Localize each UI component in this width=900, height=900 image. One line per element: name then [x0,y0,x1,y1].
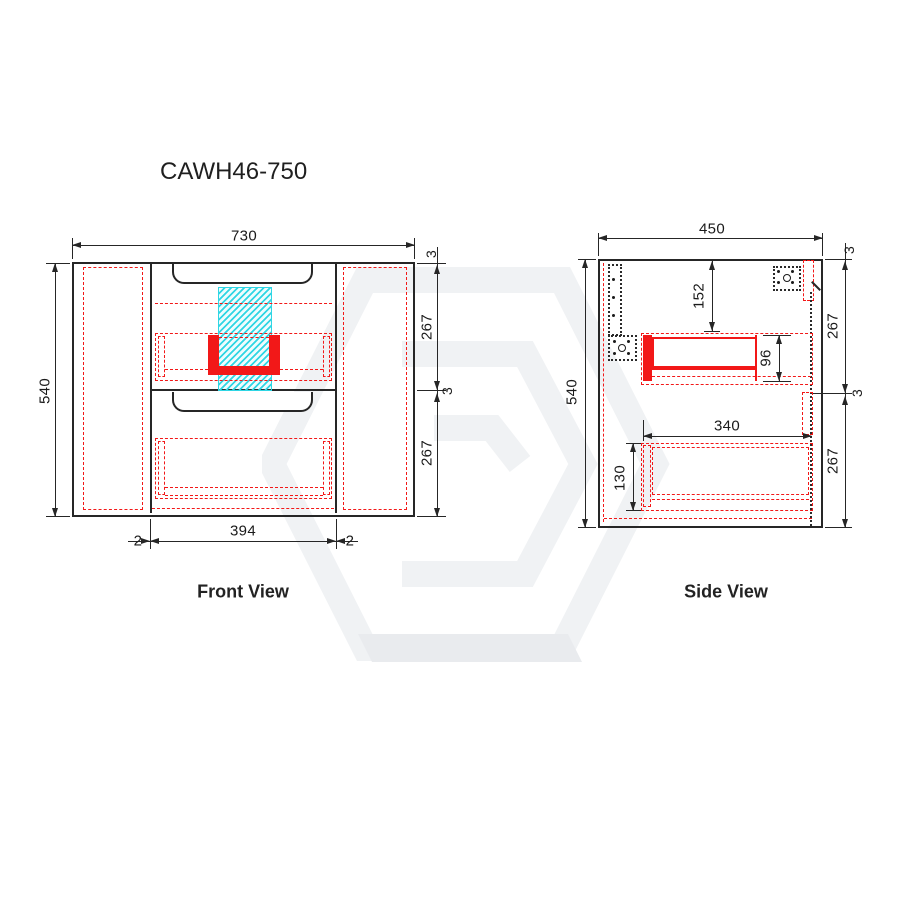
dim-label-drawer-box-height: 96 [758,349,775,366]
drain-cutout-bottom [208,366,280,375]
dim-extension-line [704,331,720,332]
dim-arrow [630,502,636,511]
dim-label-drawer-height: 267 [825,448,842,474]
dim-label-gap: 3 [849,389,865,397]
side-view-label: Side View [684,582,768,603]
dim-arrow [842,384,848,393]
dim-arrow [141,538,150,544]
drawer-runner [323,336,330,377]
dim-label-top-offset: 152 [691,283,708,309]
dim-extension-line [763,381,791,382]
dim-arrow [842,261,848,270]
drawer-box-side [652,337,757,368]
dim-arrow [776,372,782,381]
bottom-hidden-edge [604,518,812,519]
dim-extension-line [46,516,70,517]
technical-drawing-page: CAWH46-750 730 540 [0,0,900,900]
dim-arrow [434,265,440,274]
dim-arrow [842,396,848,405]
dim-line [150,541,336,542]
bracket-screw-dot [627,340,630,343]
dim-label-gap: 3 [439,387,455,395]
drawer-runner [323,441,330,495]
drawer-box-hidden [155,438,332,499]
dim-arrow [842,519,848,528]
drawer-box-side [652,447,809,495]
front-panel-hidden-edge [603,263,604,522]
hidden-rail-line [155,303,332,304]
mounting-bracket-strip [608,264,622,336]
hidden-rail-line [652,499,809,500]
dim-label-drawer-width: 394 [230,523,256,540]
dim-label-drawer-height: 267 [825,313,842,339]
dim-arrow [52,263,58,272]
bracket-screw-dot [627,352,630,355]
dim-line [585,259,586,528]
dim-extension-line [336,519,337,549]
dim-label-gap: 3 [423,250,439,258]
dim-extension-line [825,259,852,260]
bracket-screw-dot [791,281,794,284]
dim-label-gap: 2 [134,533,143,550]
bottom-hidden-edge [152,508,334,509]
side-panel-hidden-edge [83,267,143,510]
dim-arrow [598,235,607,241]
dim-label-depth: 450 [699,221,725,238]
drawer-front-section [643,445,651,507]
dim-line [633,443,634,511]
dim-extension-line [46,263,70,264]
hidden-rail-line [165,495,323,496]
bracket-screw-dot [777,270,780,273]
page-title: CAWH46-750 [160,158,307,186]
front-view-label: Front View [197,582,289,603]
dim-extension-line [150,519,151,549]
dim-line [643,436,812,437]
side-panel-hidden-edge [343,267,407,510]
dim-extension-line [813,393,852,394]
bracket-screw-dot [777,281,780,284]
dim-arrow [72,242,81,248]
dim-line [72,245,415,246]
drawer-handle-recess [172,392,313,412]
dim-arrow [709,261,715,270]
dim-line [55,263,56,517]
dim-extension-line [417,516,446,517]
bracket-screw-dot [612,296,615,299]
drawer-runner [158,336,165,377]
dim-arrow [434,508,440,517]
bracket-hole [783,274,791,282]
bracket-screw-dot [613,352,616,355]
rail-hidden [802,392,813,435]
bracket-hole [618,344,626,352]
dim-arrow [582,259,588,268]
drawer-bottom-rail [652,368,757,370]
dim-arrow [327,538,336,544]
dim-label-lower-drawer-height: 130 [612,465,629,491]
dim-arrow [776,335,782,344]
dim-label-drawer-height: 267 [419,314,436,340]
hidden-rail-line [165,487,323,488]
hidden-rail-line [219,337,269,338]
dim-label-height: 540 [564,379,581,405]
dim-arrow [150,538,159,544]
dim-arrow [814,235,823,241]
dim-label-drawer-depth: 340 [714,418,740,435]
dim-arrow [406,242,415,248]
dim-arrow [643,433,652,439]
dim-label-drawer-height: 267 [419,440,436,466]
drawer-runner [158,441,165,495]
dim-arrow [803,433,812,439]
dim-arrow [582,519,588,528]
dim-label-height: 540 [37,378,54,404]
dim-arrow [336,538,345,544]
bracket-screw-dot [791,270,794,273]
dim-extension-line [417,263,446,264]
bracket-screw-dot [613,340,616,343]
dim-arrow [52,508,58,517]
hidden-rail-line [652,376,811,377]
dim-arrow [709,322,715,331]
bracket-screw-dot [612,278,615,281]
dim-line [598,238,823,239]
drawer-front-section [643,335,652,381]
bracket-screw-dot [612,314,615,317]
dim-label-gap: 2 [346,533,355,550]
dim-line [712,261,713,331]
dim-label-gap: 3 [841,246,857,254]
dim-arrow [630,443,636,452]
dim-label-width: 730 [231,228,257,245]
drawer-handle-recess [172,264,313,284]
